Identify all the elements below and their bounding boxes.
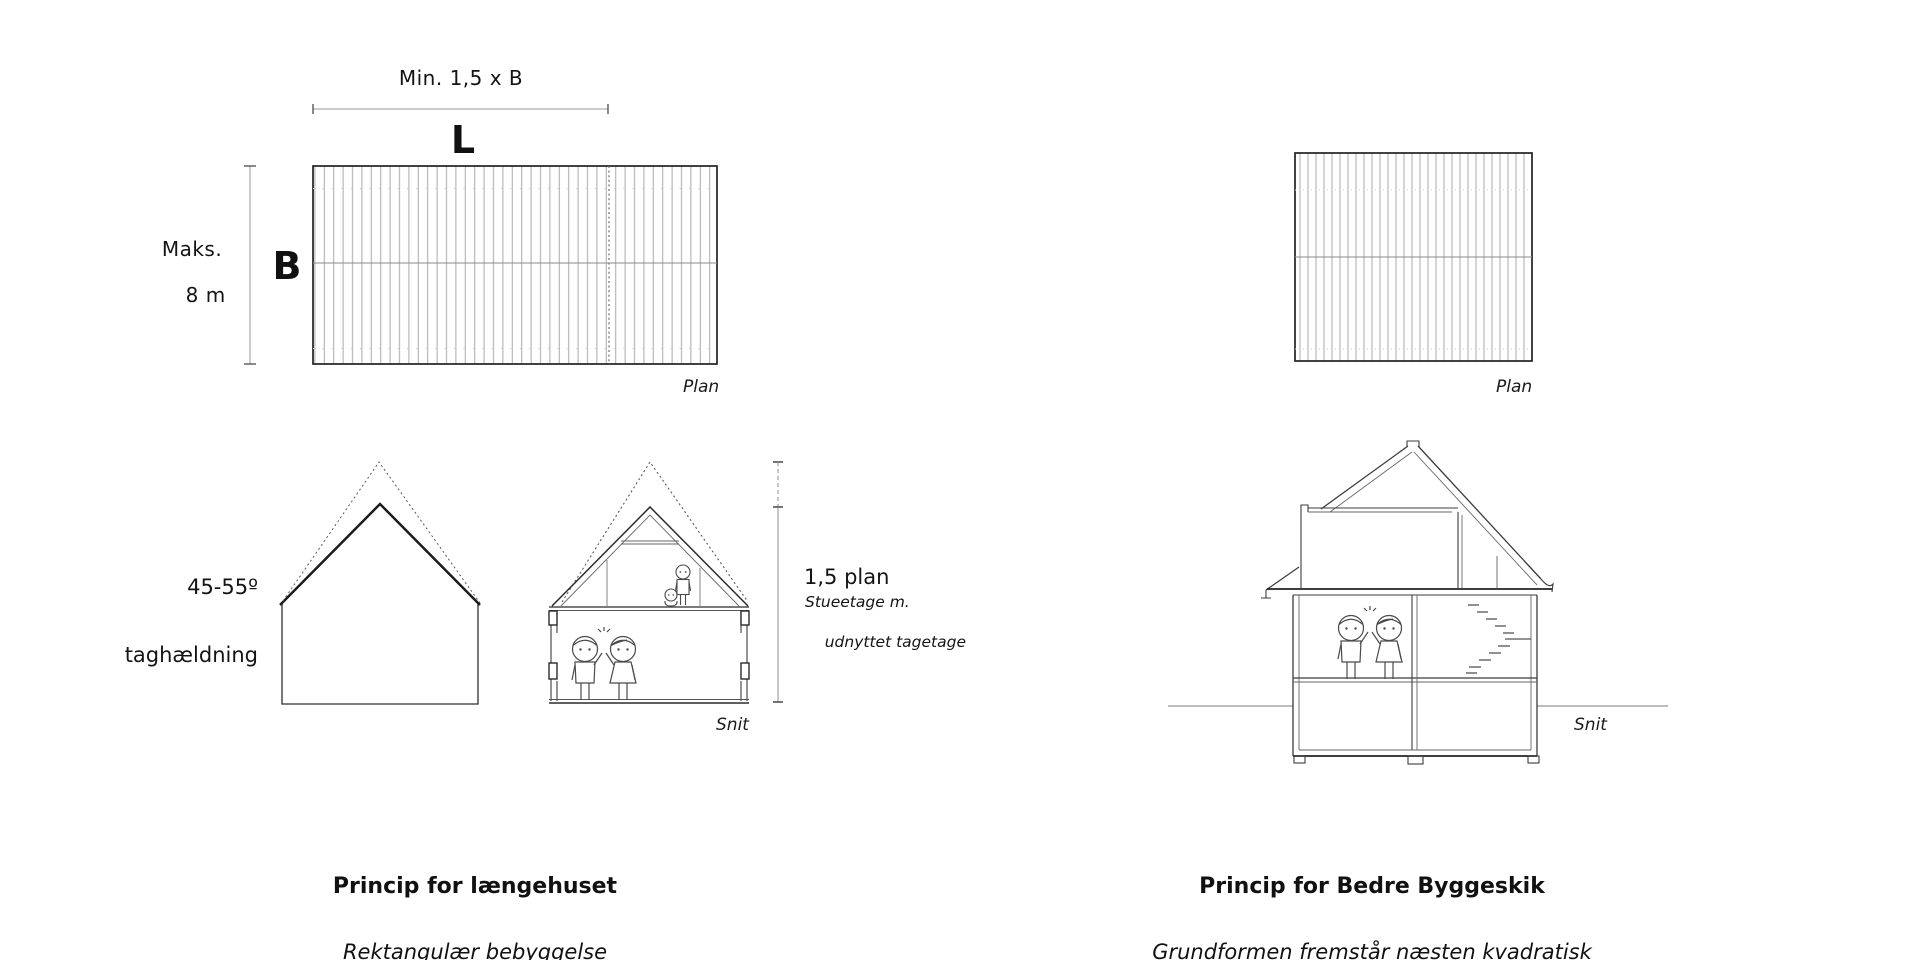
- adult-figure-boy-icon: [572, 637, 602, 701]
- plan-label-longhouse: Plan: [683, 377, 719, 397]
- roof-55deg-dotted: [562, 462, 748, 602]
- caption-longhouse: Princip for længehuset Rektangulær bebyg…: [245, 835, 705, 960]
- storeys-label: 1,5 plan: [804, 565, 889, 589]
- sparkle-icon: [1364, 606, 1376, 611]
- storeys-note: Stueetage m. udnyttet tagetage: [805, 592, 966, 652]
- adult-figure-girl-icon: [1372, 616, 1402, 680]
- roof-45deg-outline: [280, 504, 480, 605]
- bedre-byggeskik-roof-plan: [1295, 153, 1532, 361]
- snit-label-longhouse: Snit: [716, 715, 749, 735]
- child-figure-icon: [676, 565, 691, 605]
- dimension-line-length: [313, 104, 608, 114]
- staircase-icon: [1466, 605, 1531, 673]
- max-width-label: Maks. 8 m: [122, 238, 262, 307]
- toddler-figure-icon: [665, 589, 677, 606]
- longhouse-gable-section: [280, 462, 480, 704]
- caption-longhouse-subtitle: Rektangulær bebyggelse: [245, 938, 705, 960]
- diagram-linework: [0, 0, 1920, 960]
- adult-figure-boy-icon: [1338, 616, 1368, 680]
- width-symbol-label: B: [257, 244, 317, 288]
- caption-longhouse-title: Princip for længehuset: [245, 873, 705, 900]
- architecture-principles-diagram: Min. 1,5 x B L Maks. 8 m B Plan 45-55º t…: [0, 0, 1920, 960]
- roof-pitch-label: 45-55º taghældning: [58, 570, 258, 672]
- longhouse-roof-plan: [313, 166, 717, 364]
- longhouse-cross-section: [549, 462, 749, 703]
- min-length-label: Min. 1,5 x B: [376, 66, 546, 90]
- adult-figure-girl-icon: [606, 637, 636, 701]
- caption-bedre-sub1: Grundformen fremstår næsten kvadratisk: [1092, 938, 1652, 960]
- sparkle-icon: [598, 627, 610, 632]
- roof-55deg-dotted-outline: [283, 462, 480, 603]
- bedre-byggeskik-cross-section: [1261, 441, 1553, 764]
- plan-label-bedre: Plan: [1496, 377, 1532, 397]
- length-symbol-label: L: [433, 118, 493, 162]
- caption-bedre-byggeskik: Princip for Bedre Byggeskik Grundformen …: [1092, 835, 1652, 960]
- snit-label-bedre: Snit: [1574, 715, 1607, 735]
- dimension-line-storeys: [773, 462, 783, 702]
- caption-bedre-title: Princip for Bedre Byggeskik: [1092, 873, 1652, 900]
